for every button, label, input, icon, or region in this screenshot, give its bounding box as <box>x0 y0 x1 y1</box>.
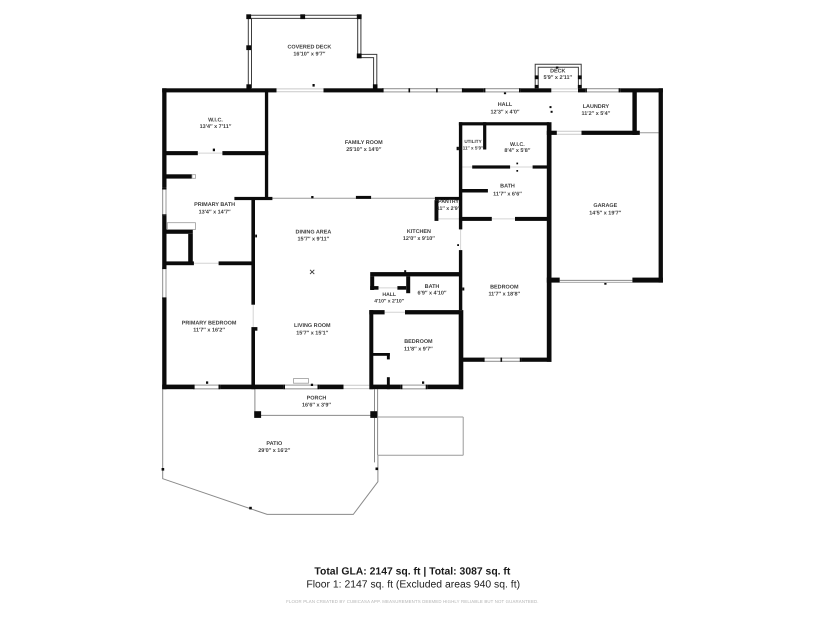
svg-text:25′10″ x 14′0″: 25′10″ x 14′0″ <box>346 147 381 153</box>
svg-text:5′9″ x 2′11″: 5′9″ x 2′11″ <box>543 75 572 81</box>
svg-text:13′4″ x 14′7″: 13′4″ x 14′7″ <box>199 209 231 215</box>
svg-text:GARAGE: GARAGE <box>593 203 617 209</box>
svg-text:BATH: BATH <box>425 284 440 290</box>
svg-text:4′10″ x 2′10″: 4′10″ x 2′10″ <box>374 299 405 305</box>
svg-text:16′6″ x 3′9″: 16′6″ x 3′9″ <box>302 402 331 408</box>
svg-text:BATH: BATH <box>500 184 515 190</box>
svg-text:11′2″ x 5′4″: 11′2″ x 5′4″ <box>582 111 611 117</box>
svg-text:W.I.C.: W.I.C. <box>208 118 223 124</box>
svg-text:HALL: HALL <box>382 292 396 298</box>
svg-text:BEDROOM: BEDROOM <box>490 284 519 290</box>
svg-text:11″ x 2′9″: 11″ x 2′9″ <box>437 206 461 212</box>
svg-text:DINING AREA: DINING AREA <box>296 229 332 235</box>
svg-text:12′3″ x 4′0″: 12′3″ x 4′0″ <box>491 109 520 115</box>
svg-text:Floor 1: 2147 sq. ft (Excluded: Floor 1: 2147 sq. ft (Excluded areas 940… <box>306 579 520 590</box>
svg-text:PRIMARY BATH: PRIMARY BATH <box>194 202 235 208</box>
svg-text:15′7″ x 9′11″: 15′7″ x 9′11″ <box>298 237 330 243</box>
svg-text:11′7″ x 18′8″: 11′7″ x 18′8″ <box>488 292 520 298</box>
svg-text:Total GLA: 2147 sq. ft | Total: Total GLA: 2147 sq. ft | Total: 3087 sq.… <box>314 566 510 577</box>
svg-text:UTILITY: UTILITY <box>464 139 481 144</box>
svg-text:HALL: HALL <box>498 102 513 108</box>
svg-text:13′4″ x 7′11″: 13′4″ x 7′11″ <box>200 124 232 130</box>
svg-text:8′4″ x 5′8″: 8′4″ x 5′8″ <box>504 148 530 154</box>
svg-text:W.I.C.: W.I.C. <box>510 142 525 148</box>
svg-text:29′0″ x 16′2″: 29′0″ x 16′2″ <box>258 448 290 454</box>
svg-text:PANTRY: PANTRY <box>438 199 459 205</box>
svg-text:COVERED DECK: COVERED DECK <box>287 45 331 51</box>
svg-text:LAUNDRY: LAUNDRY <box>583 104 610 110</box>
svg-text:14′5″ x 19′7″: 14′5″ x 19′7″ <box>589 211 621 217</box>
svg-text:PORCH: PORCH <box>307 396 327 402</box>
svg-text:11″ x 5′9″: 11″ x 5′9″ <box>463 146 484 151</box>
svg-text:PATIO: PATIO <box>266 441 282 447</box>
svg-text:11′7″ x 16′2″: 11′7″ x 16′2″ <box>193 328 225 334</box>
svg-text:16′10″ x 9′7″: 16′10″ x 9′7″ <box>293 52 325 58</box>
svg-text:LIVING ROOM: LIVING ROOM <box>294 323 331 329</box>
svg-text:DECK: DECK <box>550 68 565 74</box>
svg-text:11′8″ x 9′7″: 11′8″ x 9′7″ <box>404 347 433 353</box>
svg-text:FLOOR PLAN CREATED BY CUBICASA: FLOOR PLAN CREATED BY CUBICASA APP. MEAS… <box>286 599 539 604</box>
svg-text:12′0″ x 9′10″: 12′0″ x 9′10″ <box>403 236 435 242</box>
svg-text:FAMILY ROOM: FAMILY ROOM <box>345 140 383 146</box>
svg-text:KITCHEN: KITCHEN <box>407 229 431 235</box>
svg-text:11′7″ x 6′6″: 11′7″ x 6′6″ <box>493 192 522 198</box>
svg-text:BEDROOM: BEDROOM <box>404 339 433 345</box>
svg-text:6′9″ x 4′10″: 6′9″ x 4′10″ <box>418 291 447 297</box>
svg-text:PRIMARY BEDROOM: PRIMARY BEDROOM <box>182 320 237 326</box>
svg-text:15′7″ x 15′1″: 15′7″ x 15′1″ <box>296 331 328 337</box>
